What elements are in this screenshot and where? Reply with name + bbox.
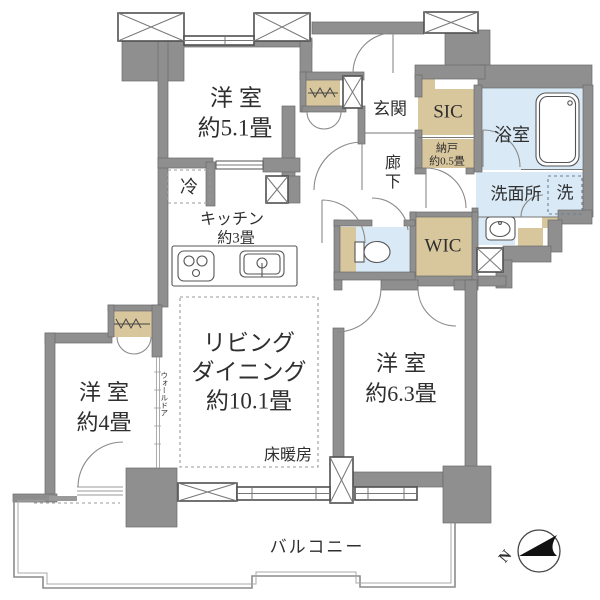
stove-burner-icon <box>193 270 200 277</box>
washer-label: 洗 <box>557 185 574 202</box>
living-size-label: 約10.1畳 <box>206 390 292 413</box>
step-area-2 <box>518 228 543 248</box>
hallway-label: 廊下 <box>382 154 398 192</box>
kitchen-size-label: 約3畳 <box>217 232 255 247</box>
entrance-label: 玄関 <box>373 101 407 118</box>
floor-plan: 洋室 約5.1畳 冷 キッチン 約3畳 リビング ダイニング 約10.1畳 床暖… <box>0 0 600 600</box>
living-label-line2: ダイニング <box>192 361 307 384</box>
wic-label: WIC <box>425 237 462 256</box>
living-label-line1: リビング <box>203 332 295 355</box>
vanity-sink-icon <box>499 222 502 225</box>
door-swing-icon <box>418 288 456 326</box>
kitchen-name-label: キッチン <box>200 212 264 228</box>
toilet-icon <box>355 242 364 262</box>
floor-plan-drawing <box>0 0 600 600</box>
door-swing-icon <box>372 198 408 230</box>
bathroom-label: 浴室 <box>494 126 530 144</box>
storage-size-label: 約0.5畳 <box>429 157 465 168</box>
toilet-icon <box>364 242 390 263</box>
door-swing-icon <box>314 142 362 190</box>
sic-label: SIC <box>433 103 463 122</box>
closet-door-icon <box>307 112 341 129</box>
floor-heating-label: 床暖房 <box>264 448 312 464</box>
bedroom63-size-label: 約6.3畳 <box>365 383 437 405</box>
toilet-cabinet-area <box>340 227 356 272</box>
door-swing-icon <box>78 442 123 487</box>
bathtub-icon <box>540 97 576 163</box>
compass-icon <box>518 530 560 572</box>
closet-and-wet-area-fills <box>112 78 585 337</box>
bedroom51-size-label: 約5.1畳 <box>198 117 273 140</box>
door-swing-icon <box>337 288 381 332</box>
bedroom63-name-label: 洋室 <box>376 353 432 375</box>
closet-door-icon <box>117 337 151 354</box>
refrigerator-label: 冷 <box>180 178 198 196</box>
bathtub-drain-icon <box>568 101 572 105</box>
balcony-outline <box>14 497 455 588</box>
bedroom51-name-label: 洋室 <box>210 87 268 110</box>
balcony-label: バルコニー <box>270 539 365 556</box>
stove-burner-icon <box>184 256 194 266</box>
door-swing-icon <box>426 168 466 208</box>
washroom-label: 洗面所 <box>491 186 542 203</box>
door-swing-icon <box>353 33 393 73</box>
stove-burner-icon <box>197 256 207 266</box>
wall-door-label: ウォールドア <box>160 372 168 417</box>
bedroom4-size-label: 約4畳 <box>76 412 131 434</box>
bedroom4-name-label: 洋室 <box>79 382 135 404</box>
storage-name-label: 納戸 <box>436 144 458 155</box>
